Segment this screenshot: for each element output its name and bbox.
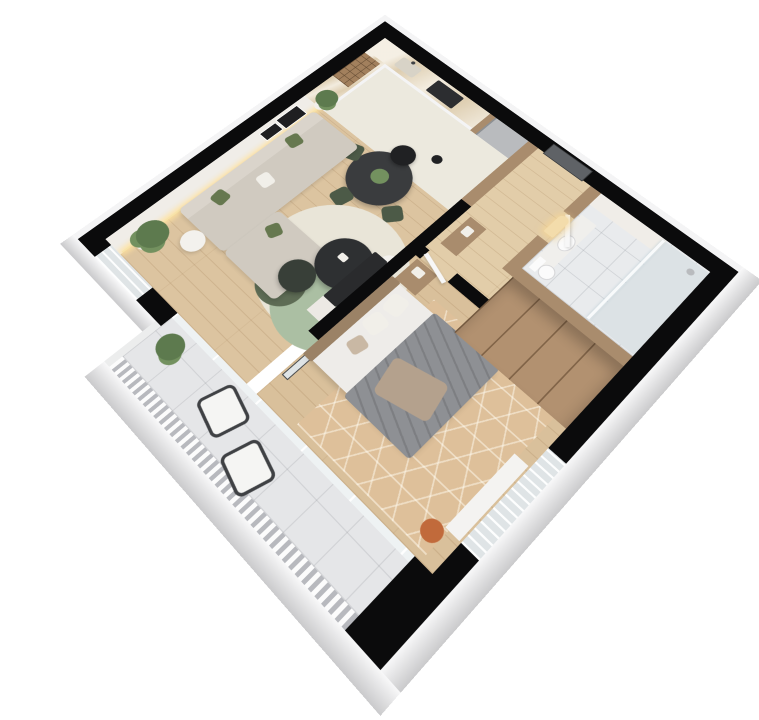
floor-plan-stage — [0, 0, 759, 720]
floor-plan-scene — [31, 21, 738, 665]
